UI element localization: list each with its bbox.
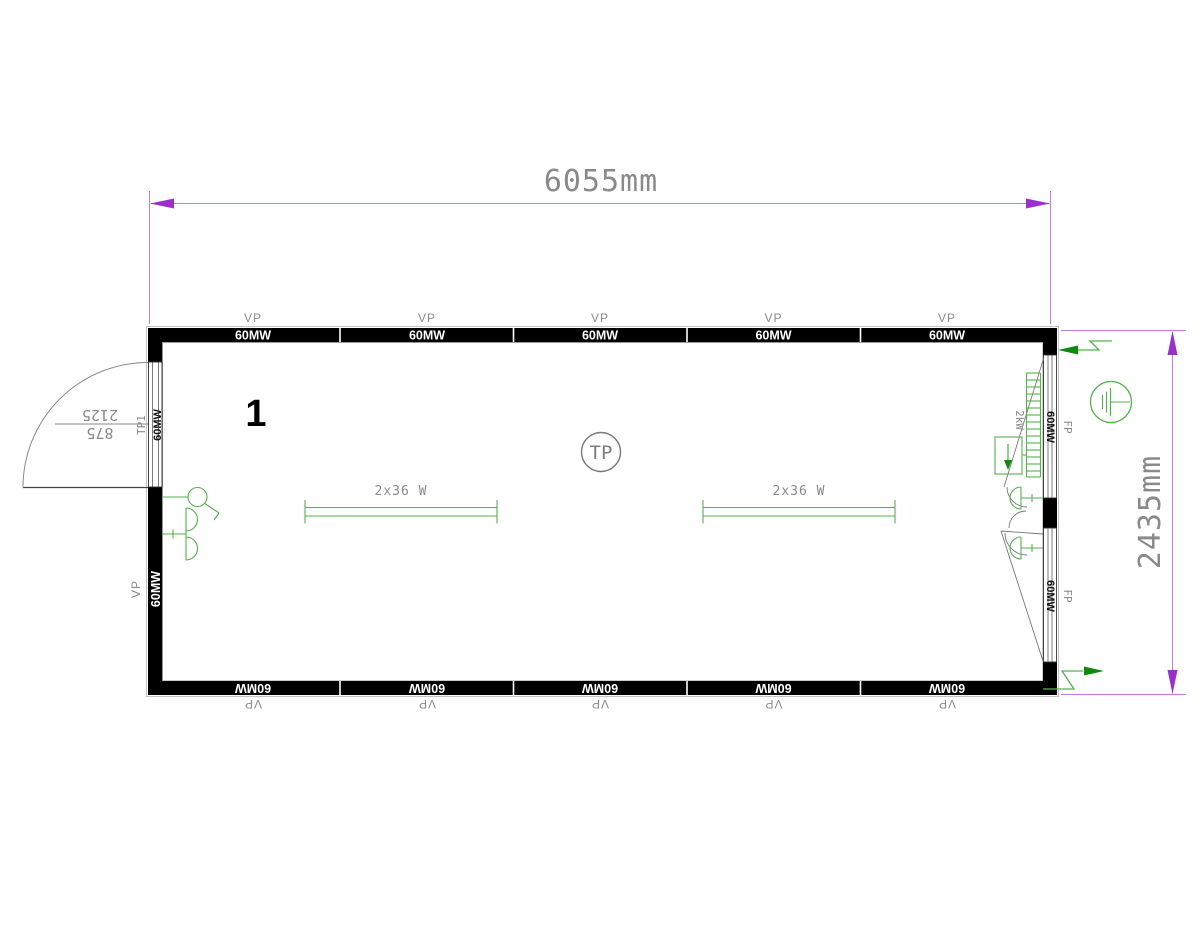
- supply-arrow-icon: [1084, 667, 1104, 676]
- panel-label: 60MW: [755, 681, 791, 695]
- walls: [147, 327, 1059, 697]
- panel-label: 60MW: [152, 408, 164, 440]
- arrow-down-icon: [1168, 670, 1178, 694]
- wall-right-bottom-post: [1043, 662, 1057, 681]
- entrance-door: 875 2125 TP1 60MW: [23, 362, 164, 488]
- tp-label: TP: [590, 442, 613, 464]
- vp-label: VP: [764, 311, 782, 325]
- panel-label: 60MW: [235, 681, 271, 695]
- vp-label: VP: [938, 311, 956, 325]
- height-dimension-text: 2435mm: [1133, 455, 1168, 569]
- vp-label: VP: [591, 311, 609, 325]
- dimension-width: 6055mm: [150, 164, 1051, 324]
- swing-arc: [1005, 533, 1027, 555]
- panel-label: 60MW: [755, 329, 791, 343]
- switch-socket-group-left: [162, 488, 219, 561]
- arrow-up-icon: [1168, 331, 1178, 355]
- vp-label: VP: [418, 311, 436, 325]
- window-opening-line: [1001, 531, 1043, 534]
- grounding-symbol: [1091, 382, 1132, 423]
- left-wall-labels: VP 60MW: [129, 571, 163, 607]
- panel-label: 60MW: [582, 681, 618, 695]
- light-fixture-2: 2x36 W: [703, 484, 895, 524]
- floor-plan-canvas: 6055mm 2435mm VP VP VP VP VP 6: [0, 0, 1200, 939]
- tp-symbol: TP: [582, 433, 621, 472]
- fp-label: FP: [1061, 589, 1074, 603]
- vp-label: VP: [764, 697, 782, 711]
- vp-label: VP: [418, 697, 436, 711]
- panel-label: 60MW: [149, 571, 163, 607]
- wall-inner-outline: [163, 343, 1044, 682]
- switch-lever-tick: [214, 513, 219, 520]
- supply-arrow-icon: [1058, 346, 1078, 355]
- door-height-text: 2125: [82, 406, 118, 424]
- light-fixture-1: 2x36 W: [305, 484, 497, 524]
- vp-label: VP: [591, 697, 609, 711]
- vp-label: VP: [244, 697, 262, 711]
- room-number: 1: [245, 393, 266, 435]
- arrow-left-icon: [150, 199, 174, 209]
- arrow-right-icon: [1026, 199, 1050, 209]
- supply-zigzag-icon: [1077, 341, 1112, 350]
- thermostat: [995, 437, 1027, 474]
- door-swing-arc: [23, 363, 148, 488]
- socket-group-right: [1010, 487, 1043, 559]
- panel-label: 60MW: [929, 681, 965, 695]
- tp1-label: TP1: [135, 415, 148, 435]
- width-dimension-text: 6055mm: [544, 164, 658, 199]
- light-label: 2x36 W: [773, 484, 826, 499]
- wall-outer-outline: [147, 327, 1059, 697]
- panel-label: 60MW: [929, 329, 965, 343]
- floor-plan-drawing: 6055mm 2435mm VP VP VP VP VP 6: [0, 0, 1200, 939]
- vp-label: VP: [938, 697, 956, 711]
- window-swing-arcs: [1005, 487, 1027, 555]
- wall-right-top-post: [1043, 342, 1057, 355]
- radiator: 2kW: [1013, 373, 1041, 477]
- panel-label: 60MW: [1044, 411, 1056, 443]
- wall-left-upper: [148, 342, 162, 363]
- socket-icon: [1010, 537, 1021, 559]
- supply-arrow-top: [1058, 341, 1112, 355]
- panel-label: 60MW: [582, 329, 618, 343]
- socket-icon: [186, 537, 198, 560]
- panel-label: 60MW: [235, 329, 271, 343]
- swing-arc: [1009, 511, 1026, 528]
- panel-label: 60MW: [1044, 580, 1056, 612]
- fp-label: FP: [1061, 420, 1074, 434]
- panel-label: 60MW: [409, 329, 445, 343]
- vp-label: VP: [244, 311, 262, 325]
- window-opening-line: [1001, 531, 1043, 661]
- heater-power-label: 2kW: [1013, 410, 1026, 430]
- light-label: 2x36 W: [375, 484, 428, 499]
- socket-icon: [186, 508, 198, 531]
- switch-lever: [204, 503, 219, 513]
- wall-right-pier: [1043, 498, 1057, 528]
- door-width-text: 875: [86, 424, 113, 442]
- vp-label: VP: [129, 580, 143, 598]
- panel-label: 60MW: [409, 681, 445, 695]
